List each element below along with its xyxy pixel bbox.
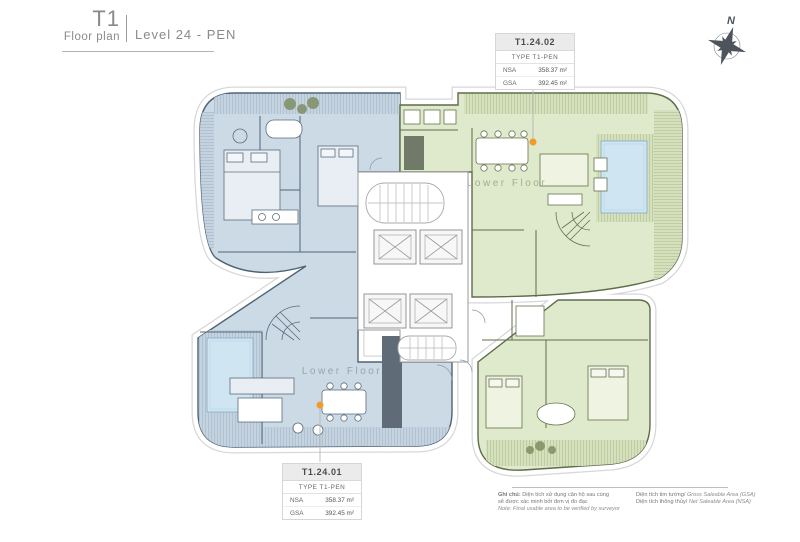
- title-block: T1 Floor plan Level 24 - PEN: [58, 8, 236, 43]
- unit-id: T1.24.02: [496, 34, 574, 51]
- title-divider: [126, 15, 127, 42]
- unit-info-card-t1-24-01[interactable]: T1.24.01 TYPE T1-PEN NSA 358.37 m² GSA 3…: [282, 463, 362, 520]
- unit-t1-24-02-pool: [601, 141, 647, 213]
- legend-footer: Ghi chú: Diện tích sử dụng căn hộ sau cù…: [498, 487, 760, 513]
- gsa-label: GSA: [290, 510, 304, 517]
- compass-north-label: N: [727, 15, 736, 27]
- footer-divider: [512, 487, 728, 488]
- core-floorplan: [358, 158, 485, 380]
- title-underline: [62, 51, 214, 52]
- note-line-2: sẽ được xác minh bởi đơn vị đo đạc: [498, 499, 636, 506]
- unit1-leader-dot: [317, 402, 324, 409]
- note-line-en: Note: Final usable area to be verified b…: [498, 506, 636, 513]
- project-title: T1: [58, 8, 120, 30]
- unit-id: T1.24.01: [283, 464, 361, 481]
- nsa-value: 358.37 m²: [538, 67, 567, 74]
- unit-type: TYPE T1-PEN: [283, 481, 361, 494]
- gsa-value: 392.45 m²: [538, 80, 567, 87]
- level-label: Level 24 - PEN: [135, 27, 236, 43]
- lower-floor-label-unit2: Lower Floor: [467, 178, 547, 189]
- gsa-label: GSA: [503, 80, 517, 87]
- compass-icon: N: [702, 15, 752, 71]
- nsa-label: NSA: [503, 67, 516, 74]
- gsa-row: GSA 392.45 m²: [496, 77, 574, 89]
- unit-type: TYPE T1-PEN: [496, 51, 574, 64]
- nsa-definition: Diện tích thông thủy/ Net Saleable Area …: [636, 499, 756, 506]
- unit-info-card-t1-24-02[interactable]: T1.24.02 TYPE T1-PEN NSA 358.37 m² GSA 3…: [495, 33, 575, 90]
- nsa-row: NSA 358.37 m²: [283, 494, 361, 507]
- gsa-row: GSA 392.45 m²: [283, 507, 361, 519]
- gsa-definition: Diện tích tim tường/ Gross Saleable Area…: [636, 492, 756, 499]
- nsa-value: 358.37 m²: [325, 497, 354, 504]
- gsa-value: 392.45 m²: [325, 510, 354, 517]
- page-subtitle: Floor plan: [58, 31, 120, 43]
- note-line-1: Ghi chú: Diện tích sử dụng căn hộ sau cù…: [498, 492, 636, 499]
- floor-plan-page: Lower Floor: [0, 0, 800, 542]
- nsa-row: NSA 358.37 m²: [496, 64, 574, 77]
- lower-floor-label-unit1: Lower Floor: [302, 366, 382, 377]
- floor-plan-drawing: Lower Floor: [0, 0, 800, 542]
- nsa-label: NSA: [290, 497, 303, 504]
- unit2-leader-dot: [530, 139, 537, 146]
